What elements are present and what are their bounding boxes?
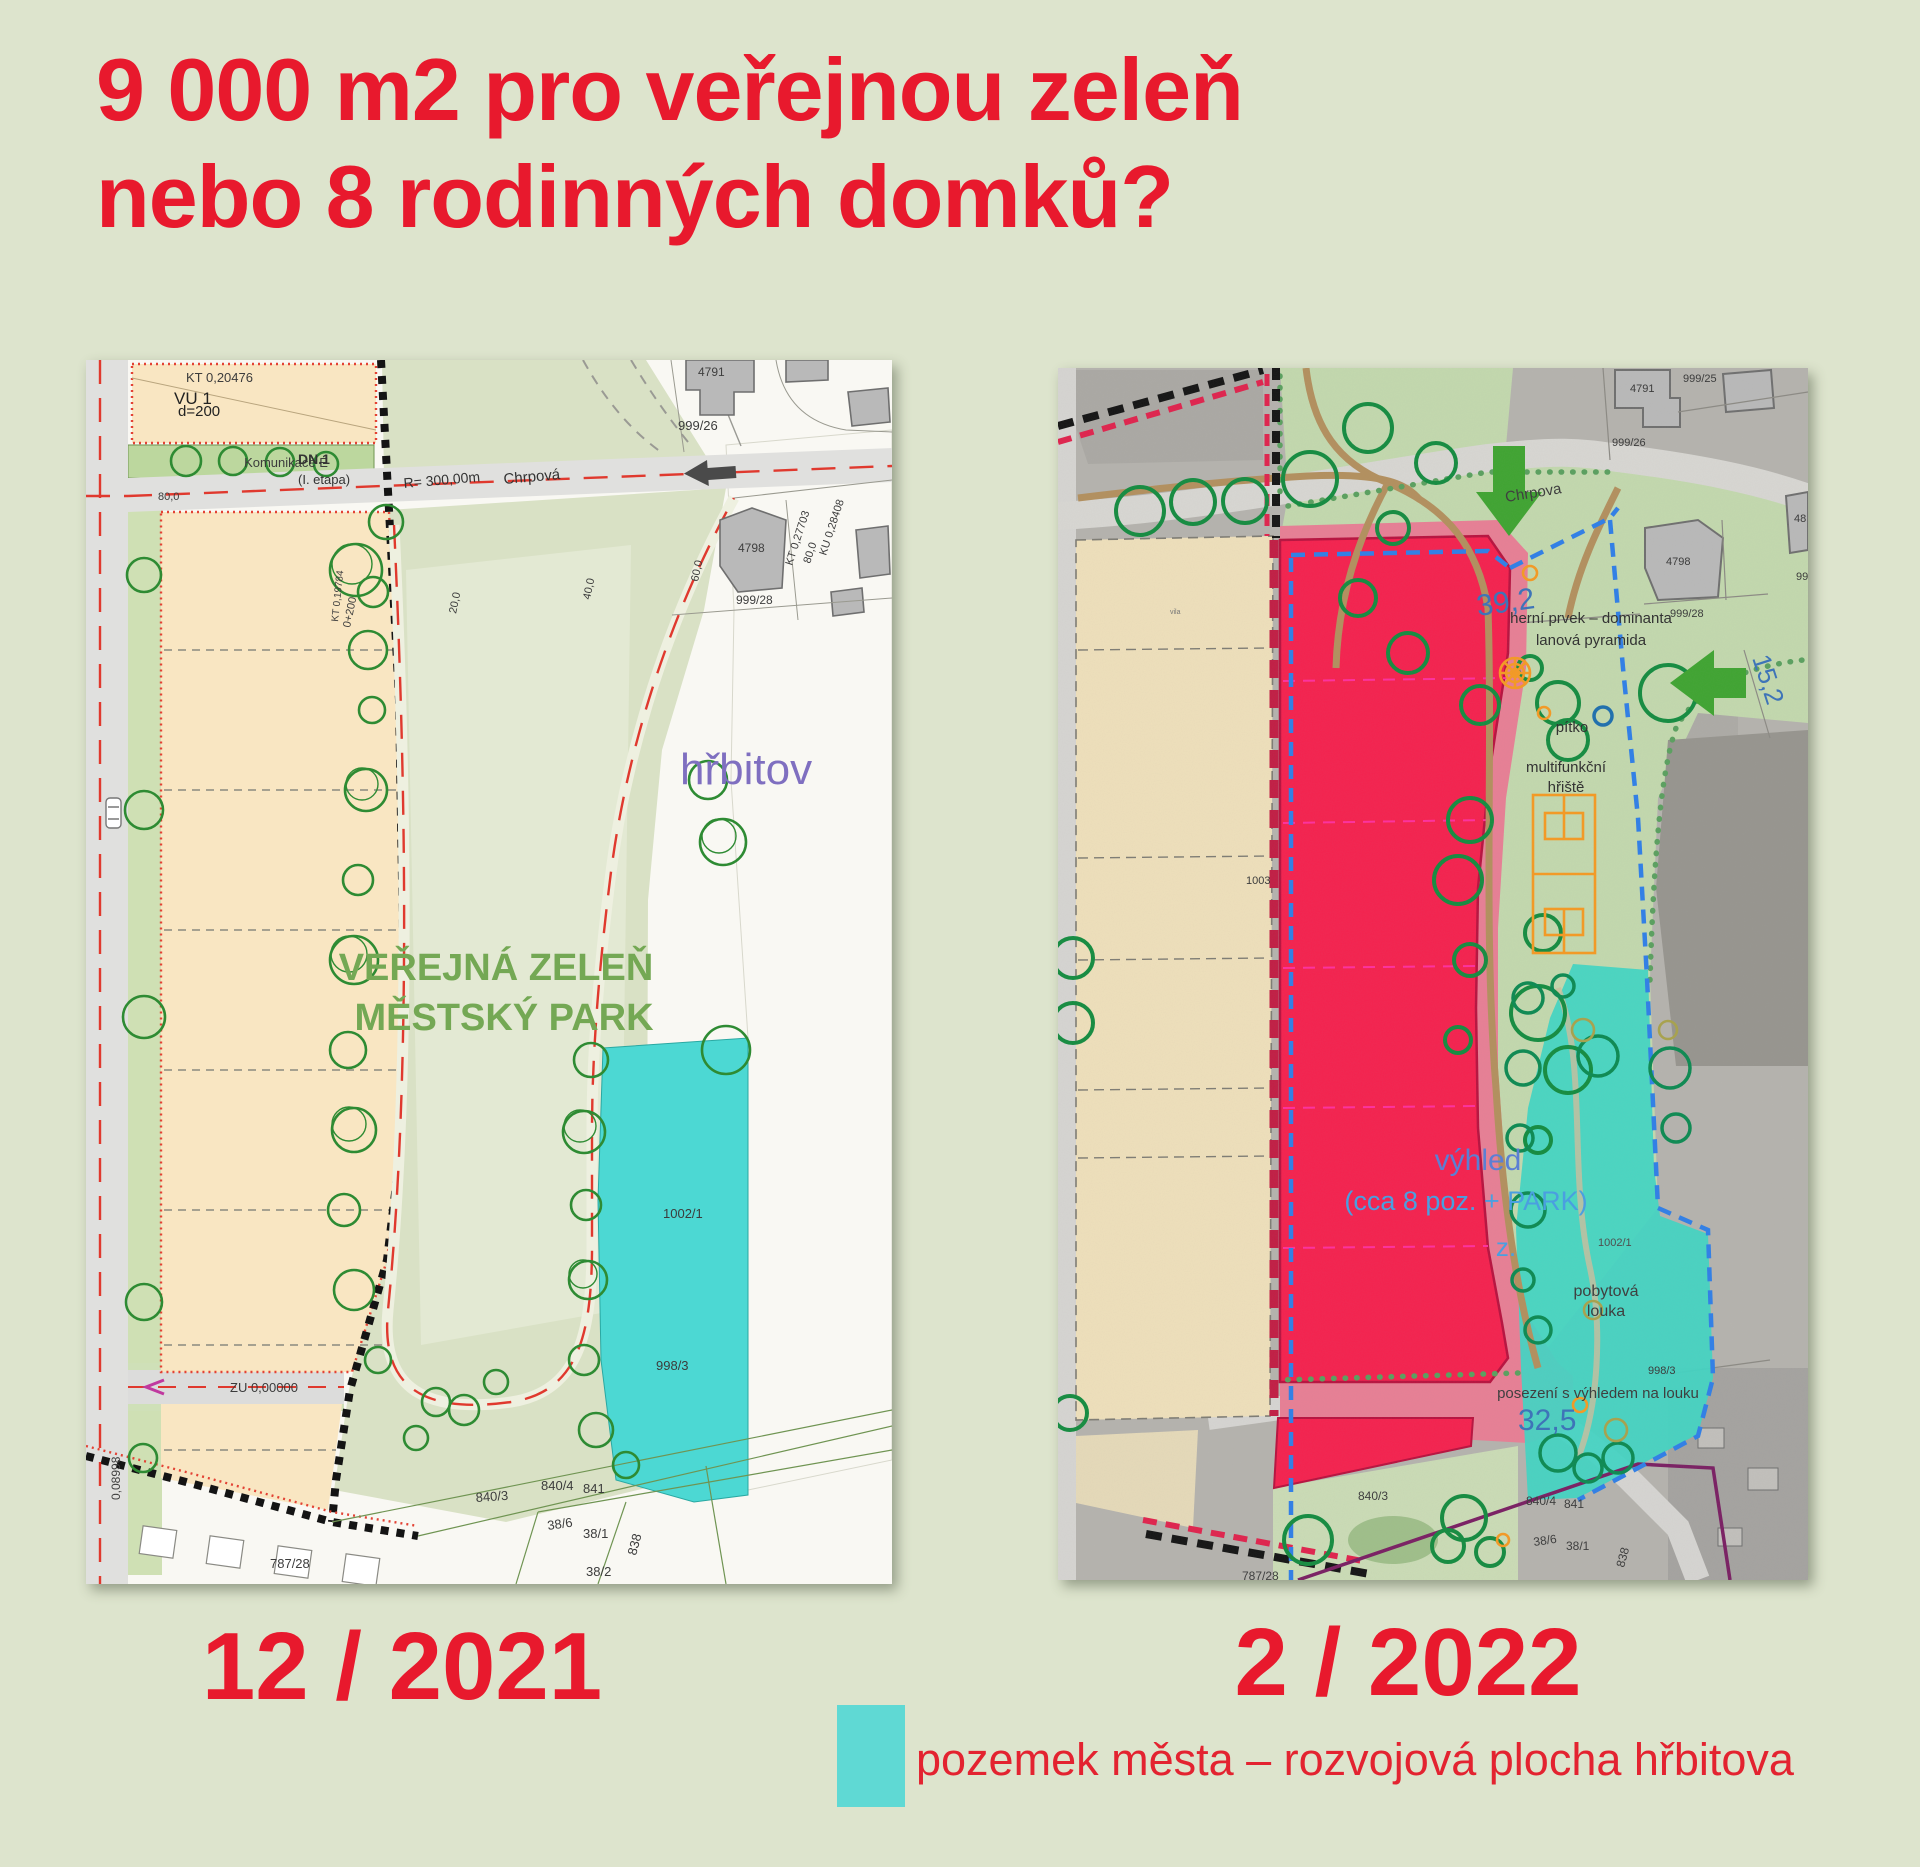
parcel-number: 4798	[738, 541, 765, 555]
parcel-number: 840/4	[1526, 1494, 1556, 1508]
parcel-number: 999/26	[678, 418, 718, 433]
title-line-2: nebo 8 rodinných domků?	[96, 143, 1243, 250]
infographic-page: 9 000 m2 pro veřejnou zeleň nebo 8 rodin…	[0, 0, 1920, 1867]
playground-label-line1: herní prvek – dominanta	[1510, 610, 1672, 627]
parcel-number: 787/28	[270, 1556, 310, 1571]
vyhled-label: výhled	[1435, 1144, 1522, 1177]
parcel-number: 4791	[1630, 383, 1654, 395]
parcel-number: 999/28	[1670, 608, 1704, 620]
parcel-label: 0,08998	[109, 1456, 123, 1500]
legend-label: pozemek města – rozvojová plocha hřbitov…	[916, 1734, 1794, 1786]
parcel-number: 841	[583, 1481, 605, 1496]
parcel-number: 38/1	[583, 1526, 608, 1541]
parcel-number: 4798	[1666, 556, 1690, 568]
cca-8-poz-label: (cca 8 poz. + PARK)	[1344, 1186, 1587, 1216]
map-plan-12-2021: KT 0,20476 VU 1 d=200 Komunikace E 80,0 …	[86, 360, 892, 1584]
plan-drawing-2022: 999/25 4791 999/26 Chrpova 4798 999/28 4…	[1058, 368, 1808, 1580]
parcel-number: 48	[1794, 513, 1806, 525]
caption-12-2021: 12 / 2021	[202, 1612, 602, 1722]
title-line-1: 9 000 m2 pro veřejnou zeleň	[96, 36, 1243, 143]
dimension-label: 80,0	[158, 491, 179, 503]
parcel-number: 840/3	[475, 1488, 509, 1505]
parcel-number: 999/26	[1612, 437, 1646, 449]
parcel-number: 1002/1	[1598, 1237, 1632, 1249]
court-label-line1: multifunkční	[1526, 759, 1607, 776]
meadow-label-line2: louka	[1587, 1303, 1625, 1320]
meadow-label-line1: pobytová	[1574, 1283, 1639, 1300]
road-label: DN.1	[298, 451, 330, 467]
legend-cyan-swatch	[837, 1705, 905, 1807]
parcel-number: 99	[1796, 571, 1808, 583]
park-label-line2: MĚSTSKÝ PARK	[354, 995, 654, 1039]
parcel-number: 1003	[1246, 875, 1270, 887]
parcel-number: 787/28	[1242, 1569, 1279, 1580]
parcel-number: 998/3	[656, 1358, 689, 1373]
parcel-number: 999/28	[736, 593, 773, 607]
chainage-label: ZU 0,00000	[230, 1380, 298, 1395]
parcel-number: 840/3	[1358, 1489, 1388, 1503]
caption-2-2022: 2 / 2022	[1235, 1608, 1582, 1718]
parcel-label: KT 0,20476	[186, 370, 253, 385]
dimension-value: 32,5	[1518, 1404, 1576, 1437]
parcel-number: 840/4	[541, 1478, 574, 1493]
parcel-number: 38/1	[1566, 1539, 1590, 1553]
court-label-line2: hřiště	[1548, 779, 1585, 796]
parcel-label: d=200	[178, 403, 220, 420]
house-label: vila	[1170, 609, 1181, 616]
park-label-line1: VEŘEJNÁ ZELEŇ	[339, 945, 654, 989]
road-label: (I. etapa)	[298, 472, 350, 487]
parcel-number: 841	[1564, 1497, 1584, 1511]
z-label: z.	[1496, 1232, 1516, 1262]
page-title: 9 000 m2 pro veřejnou zeleň nebo 8 rodin…	[96, 36, 1243, 251]
plan-drawing-2021: KT 0,20476 VU 1 d=200 Komunikace E 80,0 …	[86, 360, 892, 1584]
parcel-number: 1002/1	[663, 1206, 703, 1221]
map-plan-2-2022: 999/25 4791 999/26 Chrpova 4798 999/28 4…	[1058, 368, 1808, 1580]
playground-label-line2: lanová pyramida	[1536, 632, 1647, 649]
car-icon	[106, 798, 121, 828]
fountain-label: pítko	[1556, 719, 1589, 736]
seating-label: posezení s výhledem na louku	[1497, 1385, 1699, 1402]
parcel-number: 38/2	[586, 1564, 611, 1579]
cyan-development-area	[598, 1038, 748, 1502]
cemetery-label: hřbitov	[680, 745, 812, 794]
parcel-number: 4791	[698, 365, 725, 379]
parcel-number: 998/3	[1648, 1365, 1676, 1377]
parcel-number: 999/25	[1683, 373, 1717, 385]
